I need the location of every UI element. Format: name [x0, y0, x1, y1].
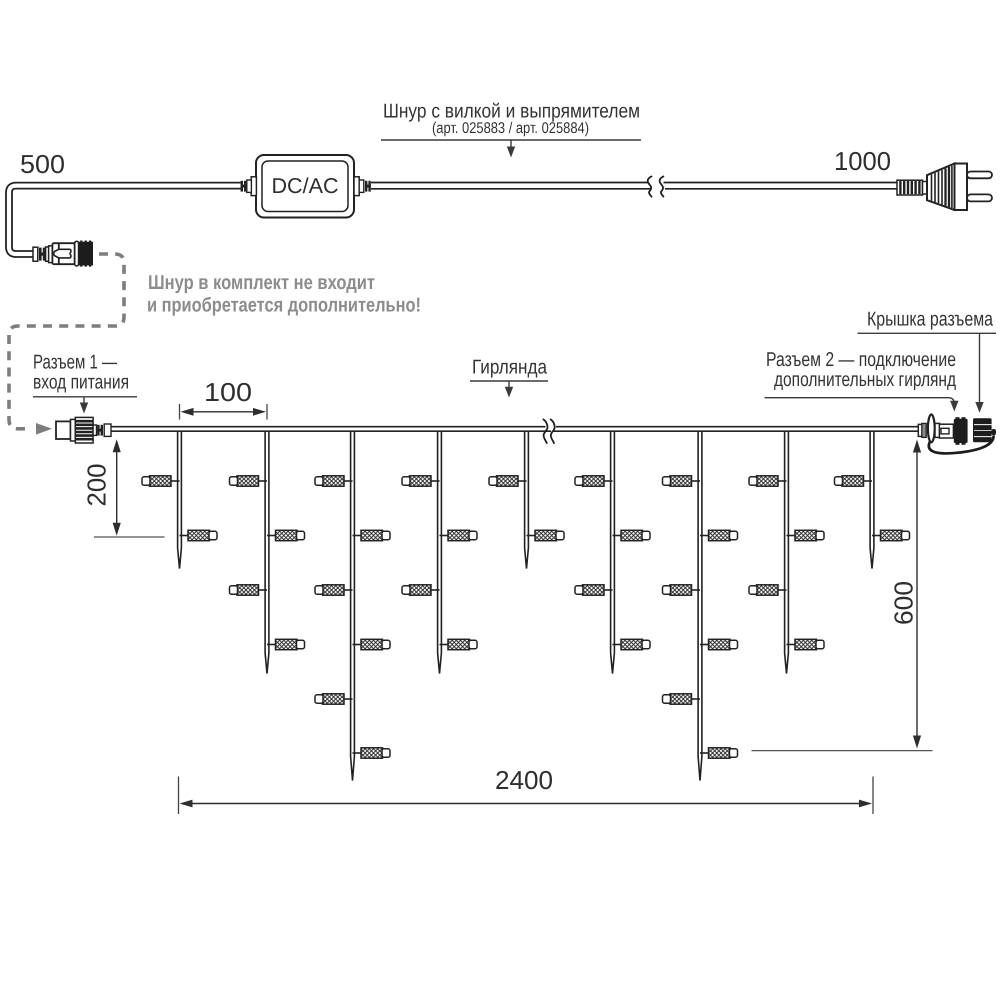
svg-text:Разъем 2 — подключение: Разъем 2 — подключение — [766, 349, 956, 371]
svg-text:и приобретается дополнительно!: и приобретается дополнительно! — [147, 295, 421, 317]
svg-text:600: 600 — [889, 581, 919, 625]
svg-text:100: 100 — [204, 377, 252, 407]
svg-text:2400: 2400 — [495, 765, 553, 795]
svg-text:DC/AC: DC/AC — [272, 174, 339, 198]
svg-text:дополнительных гирлянд: дополнительных гирлянд — [774, 369, 956, 391]
svg-text:вход питания: вход питания — [33, 372, 129, 394]
svg-text:Крышка разъема: Крышка разъема — [867, 309, 994, 331]
svg-text:200: 200 — [82, 464, 112, 507]
svg-text:(арт. 025883 / арт. 025884): (арт. 025883 / арт. 025884) — [432, 120, 589, 137]
svg-text:Разъем 1 —: Разъем 1 — — [33, 352, 117, 374]
svg-text:Гирлянда: Гирлянда — [472, 357, 548, 379]
svg-text:Шнур в комплект не входит: Шнур в комплект не входит — [148, 272, 375, 294]
svg-text:500: 500 — [20, 149, 65, 179]
svg-text:1000: 1000 — [834, 146, 891, 176]
